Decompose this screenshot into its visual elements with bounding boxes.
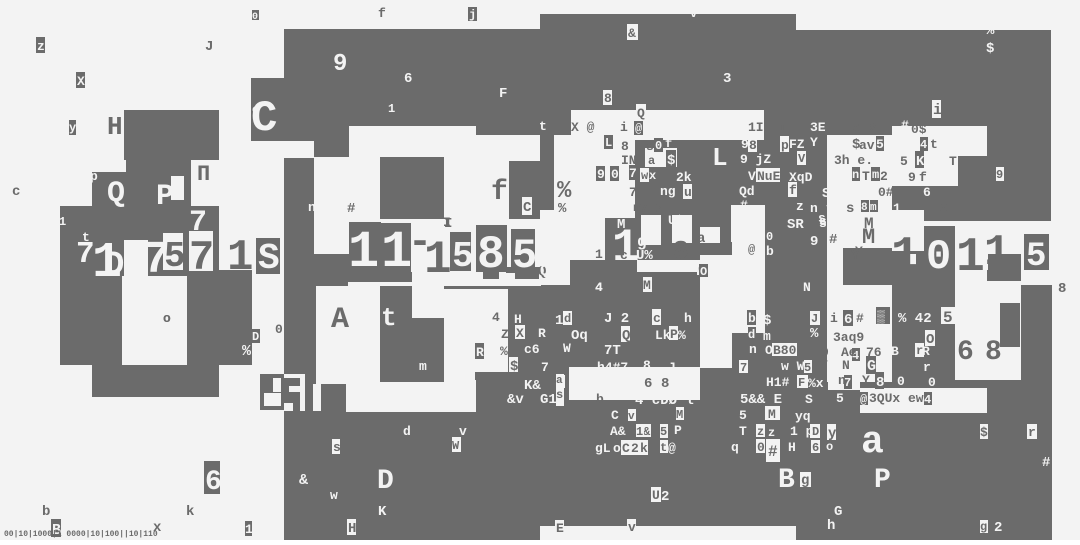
- svg-text:1I: 1I: [748, 120, 764, 135]
- svg-text:b: b: [766, 244, 774, 259]
- svg-text:J 2: J 2: [604, 311, 629, 327]
- svg-text:Oq: Oq: [571, 328, 588, 344]
- svg-text:$: $: [763, 313, 771, 329]
- svg-text:a: a: [861, 421, 884, 464]
- svg-text:Q: Q: [622, 328, 630, 344]
- svg-text:8: 8: [643, 358, 651, 373]
- svg-text:8: 8: [621, 139, 629, 154]
- svg-text:n: n: [633, 201, 640, 215]
- svg-text:s: s: [646, 139, 654, 154]
- svg-text:4: 4: [924, 393, 931, 407]
- svg-text:P: P: [670, 327, 678, 342]
- svg-text:7: 7: [629, 185, 637, 200]
- svg-text:4: 4: [492, 310, 500, 325]
- svg-text:9: 9: [741, 137, 749, 152]
- svg-text:$: $: [845, 187, 853, 203]
- svg-text:@: @: [635, 122, 642, 136]
- svg-text:#: #: [768, 443, 778, 461]
- svg-text:i: i: [933, 102, 942, 119]
- svg-text:H: H: [348, 521, 356, 537]
- svg-text:8: 8: [661, 376, 669, 392]
- svg-text:L: L: [605, 136, 612, 150]
- svg-text:8: 8: [876, 375, 884, 391]
- svg-text:W: W: [452, 439, 460, 453]
- svg-text:v: v: [628, 520, 636, 535]
- svg-text:A: A: [331, 303, 349, 337]
- svg-text:z: z: [757, 425, 764, 439]
- svg-text:2: 2: [880, 169, 888, 184]
- svg-text:5: 5: [1026, 238, 1046, 276]
- svg-text:Lk: Lk: [655, 328, 671, 343]
- svg-text:h: h: [684, 311, 692, 326]
- svg-text:NuE: NuE: [757, 169, 781, 184]
- svg-text:#: #: [856, 311, 864, 326]
- svg-text:f: f: [491, 177, 508, 208]
- svg-text:7T: 7T: [604, 343, 621, 359]
- svg-text:D: D: [377, 466, 394, 497]
- svg-text:f: f: [789, 183, 797, 198]
- svg-text:c: c: [620, 248, 628, 263]
- svg-text:N: N: [842, 358, 850, 373]
- svg-text:f: f: [919, 170, 927, 185]
- svg-text:A&: A&: [610, 424, 626, 439]
- svg-text:@: @: [860, 393, 867, 407]
- svg-text:v: v: [459, 424, 467, 439]
- svg-text:m: m: [872, 168, 879, 182]
- svg-text:R: R: [538, 326, 546, 341]
- svg-text:%: %: [810, 326, 819, 342]
- svg-text:2: 2: [661, 489, 669, 505]
- svg-text:z: z: [37, 39, 45, 54]
- svg-text:X: X: [77, 74, 85, 89]
- svg-text:%: %: [678, 328, 686, 343]
- svg-text:i: i: [620, 120, 628, 135]
- svg-text:K: K: [916, 154, 925, 170]
- svg-text:S: S: [258, 238, 280, 279]
- svg-text:b: b: [42, 504, 50, 520]
- svg-text:o: o: [613, 441, 621, 456]
- svg-text:yq: yq: [795, 409, 811, 424]
- svg-text:9: 9: [996, 168, 1003, 182]
- svg-text:%: %: [242, 343, 252, 360]
- svg-text:7 Z: 7 Z: [640, 201, 664, 216]
- svg-text:gL: gL: [595, 441, 611, 456]
- svg-text:1: 1: [595, 247, 603, 262]
- svg-text:w: w: [641, 169, 649, 183]
- svg-text:z: z: [796, 199, 804, 214]
- svg-text:1: 1: [59, 215, 66, 229]
- svg-text:b: b: [596, 392, 604, 407]
- svg-text:u: u: [684, 185, 692, 200]
- svg-text:0: 0: [766, 230, 773, 244]
- svg-text:i: i: [830, 311, 838, 326]
- svg-text:3aq9: 3aq9: [833, 330, 864, 345]
- svg-text:n: n: [308, 200, 316, 215]
- svg-text:$: $: [510, 359, 518, 375]
- svg-text:T: T: [739, 424, 747, 439]
- svg-text:7: 7: [629, 166, 637, 181]
- svg-text:&: &: [628, 26, 636, 41]
- svg-text:V: V: [748, 169, 756, 184]
- svg-text:5: 5: [836, 391, 844, 406]
- svg-text:H: H: [107, 112, 123, 142]
- svg-text:2: 2: [994, 520, 1002, 536]
- svg-text:8: 8: [985, 337, 1002, 368]
- svg-text:5: 5: [452, 236, 474, 277]
- svg-text:c6: c6: [524, 342, 540, 357]
- svg-text:J: J: [811, 312, 818, 326]
- svg-text:a: a: [648, 154, 655, 168]
- svg-text:1: 1: [984, 228, 1010, 278]
- svg-text:$: $: [667, 153, 675, 169]
- svg-text:&: &: [299, 472, 308, 489]
- svg-text:%: %: [986, 23, 995, 39]
- svg-text:z: z: [768, 426, 775, 440]
- svg-text:FZ: FZ: [789, 137, 805, 152]
- svg-text:V: V: [798, 152, 806, 166]
- svg-text:4: 4: [920, 138, 927, 152]
- svg-text:P: P: [674, 423, 682, 438]
- svg-text:0: 0: [757, 440, 765, 455]
- svg-text:0: 0: [611, 167, 619, 182]
- svg-text:8: 8: [749, 138, 757, 153]
- svg-text:@: @: [748, 243, 755, 257]
- svg-text:v: v: [628, 411, 635, 423]
- svg-text:9: 9: [597, 167, 605, 182]
- svg-text:Q: Q: [637, 106, 645, 121]
- svg-text:S: S: [805, 392, 813, 407]
- svg-text:E: E: [556, 521, 564, 536]
- svg-text:h4#7: h4#7: [597, 360, 628, 375]
- svg-text:av: av: [859, 138, 875, 153]
- svg-text:s: s: [846, 201, 854, 217]
- svg-text:M: M: [864, 215, 874, 233]
- svg-text:4: 4: [595, 280, 603, 295]
- svg-text:0: 0: [926, 233, 951, 281]
- svg-text:IN: IN: [621, 153, 637, 168]
- svg-text:p: p: [781, 138, 789, 153]
- svg-text:I: I: [443, 215, 451, 230]
- svg-text:W: W: [563, 341, 571, 356]
- svg-text:y: y: [69, 121, 76, 135]
- svg-text:t: t: [539, 119, 547, 134]
- svg-text:Y: Y: [851, 248, 860, 264]
- svg-text:8: 8: [1058, 281, 1066, 297]
- svg-text:1 p: 1 p: [790, 424, 814, 439]
- svg-text:#: #: [740, 198, 748, 213]
- svg-text:ng: ng: [660, 184, 676, 199]
- svg-text:P: P: [874, 465, 891, 496]
- svg-text:9: 9: [810, 234, 818, 250]
- svg-text:1: 1: [227, 233, 253, 283]
- svg-text:3: 3: [723, 71, 731, 87]
- svg-text:@: @: [668, 441, 676, 456]
- svg-text:1: 1: [891, 230, 920, 284]
- svg-text:6: 6: [812, 441, 819, 455]
- svg-text:g: g: [801, 473, 809, 489]
- svg-text:6: 6: [844, 312, 852, 328]
- svg-text:H: H: [514, 312, 522, 327]
- svg-text:s: s: [333, 440, 341, 455]
- svg-text:O: O: [700, 265, 707, 279]
- svg-text:1: 1: [424, 234, 452, 286]
- svg-text:5: 5: [164, 236, 186, 277]
- svg-text:t: t: [660, 441, 667, 455]
- svg-text:1: 1: [555, 313, 563, 329]
- svg-text:k: k: [640, 441, 648, 456]
- svg-text:X: X: [516, 326, 524, 341]
- svg-text:#: #: [1042, 455, 1050, 471]
- svg-text:3h e.: 3h e.: [834, 153, 873, 168]
- svg-text:j: j: [469, 8, 476, 22]
- svg-text:T: T: [949, 154, 957, 169]
- svg-text:5: 5: [804, 361, 811, 375]
- svg-text:t: t: [381, 303, 397, 333]
- svg-text:f: f: [378, 6, 386, 21]
- svg-text:A 2: A 2: [853, 121, 877, 136]
- svg-text:5: 5: [943, 309, 953, 327]
- svg-text:5: 5: [660, 425, 667, 439]
- svg-text:M: M: [768, 407, 776, 422]
- svg-text:0: 0: [252, 12, 258, 23]
- svg-text:w W: w W: [781, 359, 805, 374]
- svg-text:Y: Y: [810, 135, 818, 150]
- svg-text:9: 9: [908, 170, 916, 185]
- svg-text:Y: Y: [862, 373, 870, 388]
- svg-text:p: p: [90, 169, 98, 184]
- svg-text:&: &: [643, 425, 651, 439]
- svg-text:K: K: [378, 504, 387, 520]
- svg-text:2k: 2k: [676, 170, 692, 185]
- svg-text:7: 7: [740, 361, 747, 375]
- svg-text:w: w: [330, 488, 338, 503]
- svg-text:M: M: [676, 408, 683, 422]
- svg-text:R: R: [476, 345, 484, 360]
- svg-text:6: 6: [205, 467, 222, 498]
- svg-text:r: r: [923, 360, 931, 375]
- svg-text:XqD: XqD: [789, 170, 813, 185]
- svg-text:#: #: [347, 201, 355, 217]
- svg-text:N: N: [803, 280, 811, 295]
- svg-text:%: %: [500, 344, 508, 359]
- svg-text:F: F: [499, 86, 507, 102]
- svg-text:R: R: [922, 344, 930, 359]
- svg-text:0#: 0#: [878, 185, 894, 200]
- svg-text:#: #: [829, 232, 837, 248]
- svg-text:O: O: [765, 343, 773, 358]
- svg-text:T: T: [862, 169, 870, 184]
- svg-text:Q: Q: [107, 177, 125, 211]
- svg-text:SR: SR: [787, 217, 804, 233]
- svg-text:8: 8: [477, 229, 505, 281]
- svg-text:%: %: [828, 170, 837, 186]
- svg-text:0: 0: [275, 322, 283, 337]
- svg-text:C: C: [611, 408, 619, 423]
- svg-text:h: h: [827, 518, 835, 534]
- svg-text:n: n: [749, 342, 757, 357]
- svg-text:6: 6: [957, 337, 974, 368]
- svg-text:d: d: [403, 424, 411, 439]
- svg-text:$: $: [980, 425, 988, 440]
- svg-text:H1#: H1#: [766, 375, 790, 390]
- svg-text:SP: SP: [822, 186, 839, 202]
- svg-text:m: m: [419, 359, 427, 374]
- svg-text:6: 6: [923, 185, 931, 200]
- svg-text:d: d: [564, 312, 571, 326]
- svg-text:4 cDØ l: 4 cDØ l: [635, 393, 694, 409]
- svg-text:5: 5: [900, 154, 908, 169]
- svg-text:f: f: [665, 137, 672, 151]
- svg-text:6: 6: [404, 71, 412, 87]
- svg-text:k: k: [186, 504, 194, 520]
- svg-text:r: r: [1028, 425, 1036, 440]
- svg-text:Q: Q: [540, 263, 549, 280]
- svg-text:a: a: [697, 231, 706, 247]
- svg-text:d: d: [748, 328, 755, 342]
- svg-text:5: 5: [739, 408, 747, 423]
- svg-text:g: g: [980, 520, 987, 534]
- svg-text:1: 1: [388, 102, 395, 116]
- svg-text:5: 5: [876, 137, 884, 152]
- svg-text:C: C: [523, 200, 532, 216]
- svg-text:1: 1: [636, 425, 643, 439]
- svg-text:U: U: [652, 488, 660, 503]
- svg-text:s: s: [819, 214, 827, 229]
- svg-text:P: P: [156, 180, 174, 214]
- svg-text:Π: Π: [197, 162, 210, 187]
- svg-text:B80: B80: [773, 343, 797, 358]
- svg-text:2: 2: [631, 441, 639, 456]
- svg-text:v: v: [690, 7, 697, 21]
- svg-text:J: J: [205, 39, 213, 55]
- svg-text:n: n: [852, 168, 859, 182]
- svg-text:5&& E: 5&& E: [740, 392, 782, 408]
- svg-text:C: C: [622, 441, 630, 456]
- svg-text:M: M: [617, 217, 625, 233]
- svg-text:D: D: [104, 247, 124, 285]
- svg-text:H: H: [788, 440, 796, 455]
- svg-text:q: q: [731, 440, 739, 455]
- svg-text:0: 0: [655, 139, 662, 153]
- svg-text:00|10|1000|1 0000|10|100||10|1: 00|10|1000|1 0000|10|100||10|110: [4, 530, 158, 539]
- svg-text:o: o: [826, 440, 833, 454]
- svg-text:3QUx ew: 3QUx ew: [869, 391, 924, 406]
- svg-text:F: F: [798, 376, 805, 390]
- svg-text:76: 76: [866, 345, 882, 360]
- svg-text:o: o: [163, 311, 171, 326]
- svg-text:9 jZ: 9 jZ: [740, 152, 771, 167]
- svg-text:% 42: % 42: [898, 311, 932, 327]
- svg-text:c: c: [12, 184, 20, 200]
- svg-text:Qd: Qd: [739, 184, 755, 199]
- svg-text:U$p: U$p: [668, 213, 692, 228]
- svg-text:3E: 3E: [810, 120, 826, 135]
- svg-text:0: 0: [928, 375, 936, 390]
- svg-text:D: D: [252, 330, 259, 344]
- svg-text:U%: U%: [636, 248, 653, 264]
- svg-text:Z: Z: [501, 327, 509, 342]
- svg-text:x: x: [649, 169, 656, 183]
- svg-text:C: C: [251, 94, 277, 144]
- svg-text:7: 7: [541, 360, 549, 375]
- svg-text:s: s: [556, 388, 563, 402]
- svg-text:G1: G1: [540, 392, 557, 408]
- svg-text:j: j: [677, 377, 685, 392]
- svg-text:I: I: [779, 121, 787, 136]
- svg-text:1: 1: [348, 223, 379, 282]
- svg-text:#: #: [901, 118, 909, 133]
- svg-text:1: 1: [245, 522, 253, 537]
- svg-text:0: 0: [897, 374, 905, 389]
- svg-text:7: 7: [189, 234, 214, 282]
- svg-text:9: 9: [333, 51, 347, 78]
- svg-text:1: 1: [893, 201, 901, 216]
- svg-text:M: M: [643, 278, 651, 293]
- svg-text:K&: K&: [524, 378, 541, 394]
- svg-text:%: %: [558, 201, 567, 217]
- svg-text:B: B: [891, 344, 899, 359]
- svg-text:8: 8: [673, 236, 689, 266]
- svg-text:c: c: [653, 311, 661, 326]
- svg-text:▒: ▒: [877, 310, 885, 325]
- svg-text:0$: 0$: [911, 122, 927, 137]
- svg-text:%x: %x: [808, 376, 824, 391]
- svg-text:z: z: [940, 200, 948, 215]
- svg-text:B: B: [778, 465, 795, 496]
- svg-text:e: e: [252, 103, 259, 117]
- svg-text:1: 1: [956, 231, 985, 285]
- svg-text:L: L: [712, 143, 728, 173]
- svg-text:t: t: [930, 137, 938, 152]
- svg-text:Q: Q: [540, 211, 548, 226]
- svg-text:m: m: [870, 202, 877, 214]
- svg-text:m: m: [763, 329, 771, 344]
- svg-text:8: 8: [861, 202, 868, 214]
- svg-text:8: 8: [604, 91, 612, 106]
- svg-text:5: 5: [512, 232, 537, 280]
- svg-text:J: J: [668, 360, 676, 375]
- svg-text:X @: X @: [571, 120, 595, 135]
- svg-text:6: 6: [644, 376, 652, 392]
- svg-text:$: $: [986, 41, 994, 57]
- svg-text:Y: Y: [820, 358, 828, 373]
- svg-text:b: b: [748, 311, 756, 326]
- svg-text:&v: &v: [507, 392, 524, 408]
- svg-text:n: n: [838, 373, 846, 388]
